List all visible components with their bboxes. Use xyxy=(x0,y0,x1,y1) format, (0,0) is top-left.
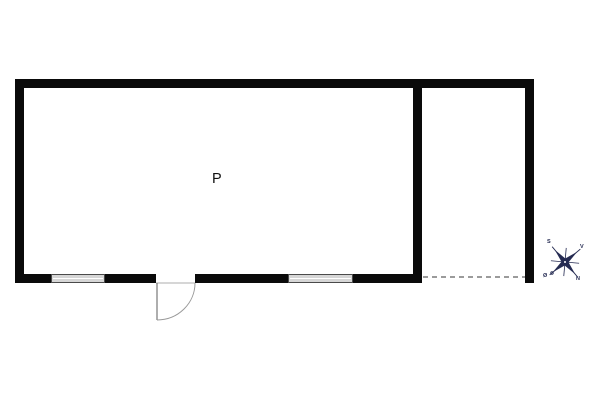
door-swing-arc xyxy=(157,283,195,320)
compass-center-hole xyxy=(564,261,566,263)
compass-label-north: N xyxy=(576,276,580,282)
wall-bottom-segment-4 xyxy=(353,274,422,283)
floorplan-canvas: P S V Ø N xyxy=(0,0,600,400)
window-pane-line xyxy=(53,278,103,279)
wall-top xyxy=(15,79,534,88)
window-symbol-left xyxy=(51,274,105,283)
door-swing-symbol xyxy=(150,270,210,328)
compass-rose: S V Ø N xyxy=(540,232,592,288)
compass-label-west: V xyxy=(580,244,584,250)
room-label-p: P xyxy=(204,171,230,187)
dashed-open-boundary xyxy=(423,276,525,278)
wall-left xyxy=(15,79,24,283)
compass-label-east: Ø xyxy=(543,273,548,279)
wall-bottom-segment-2 xyxy=(105,274,156,283)
window-symbol-right xyxy=(288,274,353,283)
wall-divider xyxy=(413,87,422,283)
wall-bottom-segment-1 xyxy=(15,274,51,283)
wall-right xyxy=(525,79,534,283)
window-pane-line xyxy=(290,278,351,279)
compass-label-south: S xyxy=(547,239,551,245)
